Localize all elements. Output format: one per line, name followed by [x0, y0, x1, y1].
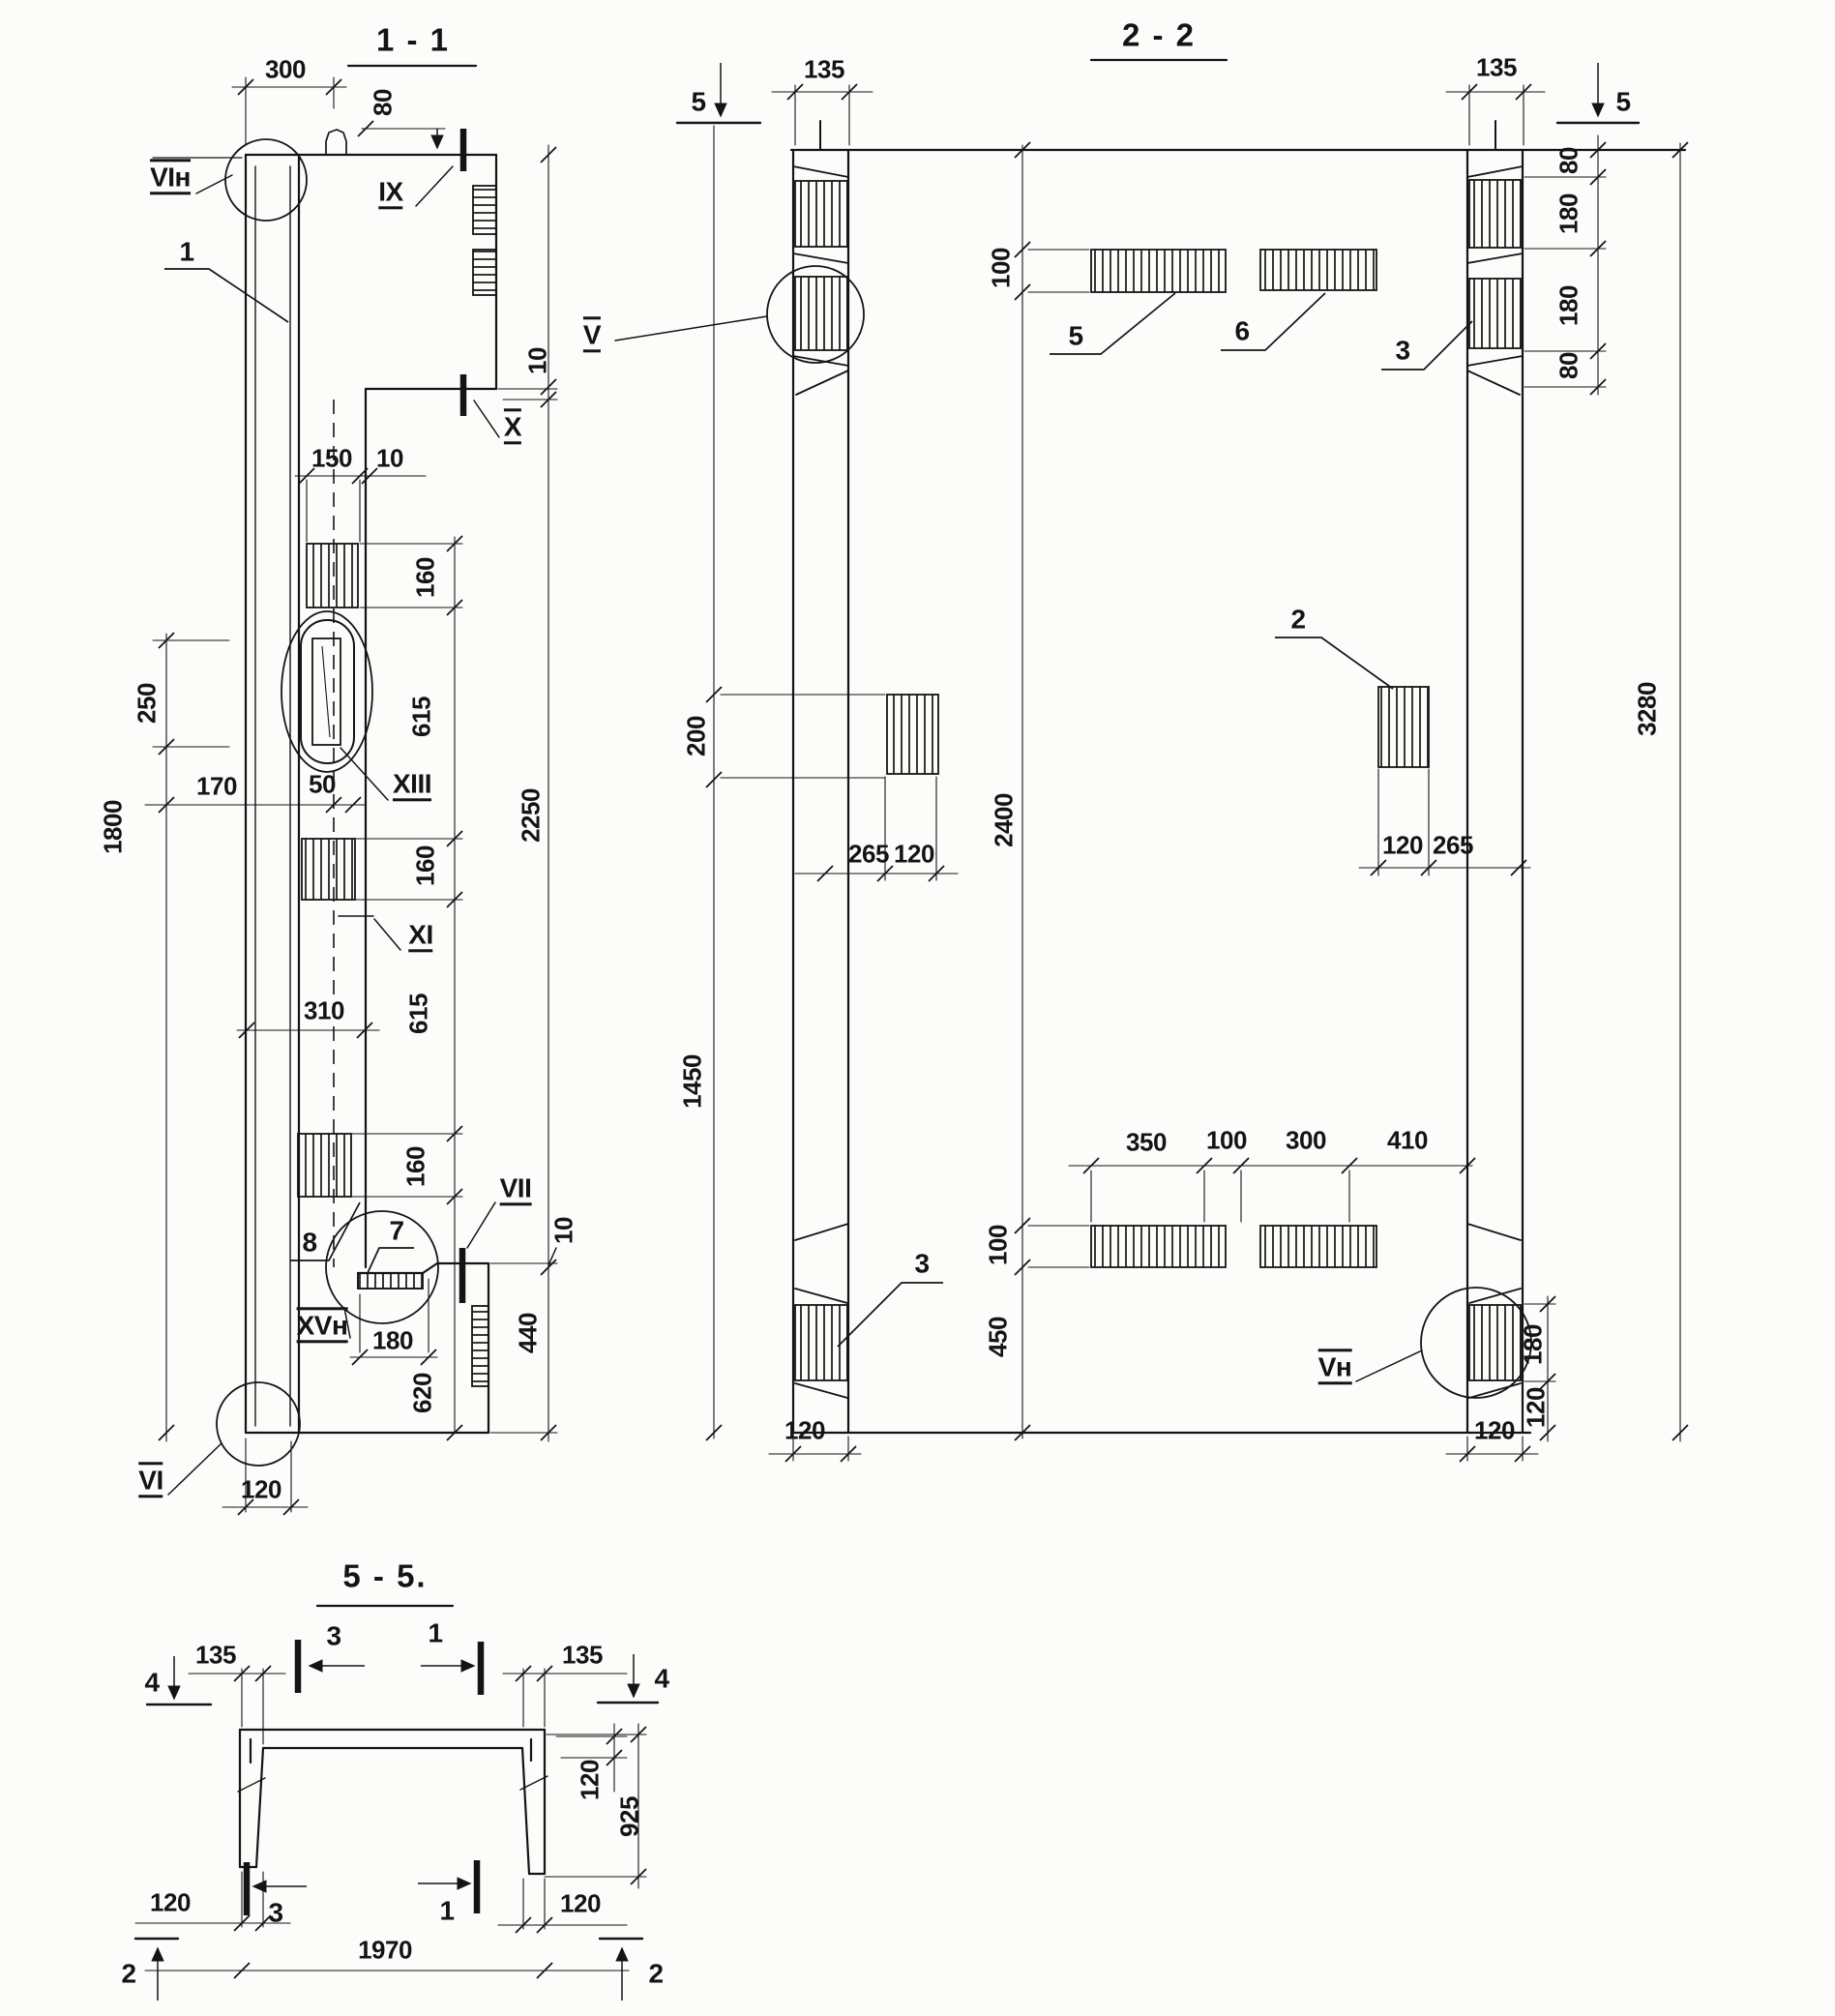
section-mark-4-right: 4: [654, 1664, 668, 1692]
detail-label-ix: IX: [378, 177, 402, 209]
dim-135-left: 135: [804, 56, 844, 82]
dim-2400: 2400: [991, 793, 1017, 847]
dim-160-1: 160: [412, 557, 438, 598]
dim-150: 150: [311, 445, 352, 471]
dim-10-gap: 10: [376, 445, 403, 471]
dim-120-under-left: 120: [784, 1417, 825, 1443]
dim-615-1: 615: [408, 697, 434, 737]
drawing-sheet: 1 - 130080VIн1IX10X15010160615250XIII170…: [0, 0, 1835, 2016]
section-mark-1-bottom: 1: [439, 1896, 454, 1924]
dim-3280: 3280: [1634, 682, 1660, 736]
section-mark-3-bottom: 3: [268, 1898, 282, 1926]
dim-450: 450: [985, 1317, 1011, 1357]
dim-310: 310: [304, 997, 344, 1023]
dim-1970: 1970: [358, 1937, 412, 1963]
detail-label-x: X: [504, 408, 521, 444]
section-mark-5-left: 5: [691, 87, 705, 115]
dim-120-right: 120: [1382, 832, 1423, 858]
dim-410: 410: [1387, 1127, 1428, 1153]
dim-135-right: 135: [1476, 54, 1517, 80]
detail-label-vi-n: VIн: [150, 159, 191, 194]
dim-180-bottom-right: 180: [1520, 1324, 1546, 1365]
dim-135-right-55: 135: [562, 1642, 603, 1668]
dim-120-bottom-right: 120: [1523, 1387, 1549, 1428]
detail-label-v-n: Vн: [1318, 1349, 1352, 1384]
dim-300: 300: [265, 56, 306, 82]
dim-160-2: 160: [412, 845, 438, 886]
detail-label-v: V: [583, 316, 601, 352]
dim-250: 250: [133, 683, 160, 724]
section-mark-2-right: 2: [648, 1959, 663, 1987]
dim-100-top: 100: [988, 248, 1014, 288]
dim-2250: 2250: [518, 788, 544, 843]
dim-160-3: 160: [402, 1146, 429, 1187]
view-title-2-2: 2 - 2: [1122, 19, 1196, 53]
item-label-3-bottom: 3: [914, 1249, 929, 1277]
dim-120-bottom-left-55: 120: [150, 1889, 191, 1915]
detail-label-vii: VII: [500, 1173, 532, 1205]
item-label-8: 8: [302, 1228, 316, 1256]
item-label-5: 5: [1068, 321, 1082, 349]
dim-1800: 1800: [100, 800, 126, 854]
dim-615-2: 615: [405, 993, 431, 1034]
item-label-6: 6: [1234, 316, 1249, 344]
dim-350: 350: [1126, 1129, 1167, 1155]
dim-265-left: 265: [848, 841, 889, 867]
section-mark-5-right: 5: [1615, 87, 1630, 115]
item-label-7: 7: [389, 1216, 403, 1244]
item-label-1: 1: [179, 237, 193, 265]
dim-120-flange: 120: [577, 1760, 603, 1800]
detail-label-xv-n: XVн: [297, 1307, 348, 1343]
dim-200: 200: [683, 716, 709, 756]
dim-100-bottom: 100: [985, 1225, 1011, 1265]
dim-80-top2: 80: [1555, 352, 1582, 379]
view-title-1-1: 1 - 1: [376, 24, 450, 58]
dim-170: 170: [196, 773, 237, 799]
dim-10-step: 10: [550, 1217, 577, 1244]
dim-80-top1: 80: [1555, 147, 1582, 174]
detail-label-xi: XI: [408, 920, 432, 952]
section-mark-2-left: 2: [121, 1959, 135, 1987]
dim-1450: 1450: [679, 1054, 705, 1109]
section-mark-3-top: 3: [326, 1621, 340, 1649]
detail-label-vi: VI: [138, 1462, 163, 1497]
dim-135-left-55: 135: [195, 1642, 236, 1668]
dim-50: 50: [309, 771, 336, 797]
dim-925: 925: [616, 1796, 642, 1837]
detail-label-xiii: XIII: [393, 769, 431, 801]
dim-80: 80: [370, 89, 396, 116]
section-mark-1-top: 1: [428, 1618, 442, 1646]
dim-120: 120: [241, 1476, 281, 1502]
dim-265-right: 265: [1433, 832, 1473, 858]
view-title-5-5: 5 - 5.: [342, 1560, 427, 1594]
dim-120-bottom-right-55: 120: [560, 1890, 601, 1916]
dim-440: 440: [515, 1313, 541, 1353]
dim-180: 180: [372, 1327, 413, 1353]
dim-180-top1: 180: [1555, 193, 1582, 234]
item-label-2: 2: [1290, 605, 1305, 633]
dim-10-top: 10: [524, 347, 550, 374]
dim-120-left: 120: [894, 841, 934, 867]
item-label-3-top: 3: [1395, 336, 1409, 364]
dim-100-center: 100: [1206, 1127, 1247, 1153]
dim-300-bottom: 300: [1286, 1127, 1326, 1153]
section-mark-4-left: 4: [144, 1668, 159, 1696]
dim-620: 620: [409, 1373, 435, 1413]
dim-120-under-right: 120: [1474, 1417, 1515, 1443]
dim-180-top2: 180: [1555, 285, 1582, 326]
